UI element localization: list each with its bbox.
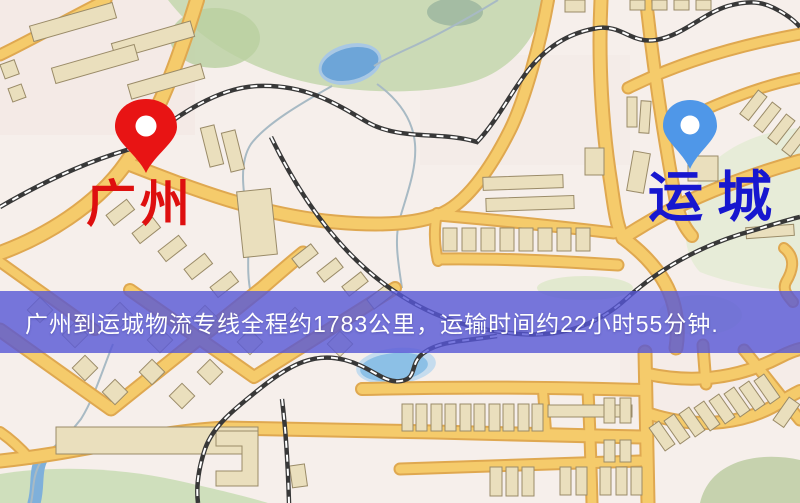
route-summary-text: 广州到运城物流专线全程约1783公里，运输时间约22小时55分钟. [25, 305, 719, 339]
street-map: 广州 运城 [0, 0, 800, 503]
destination-label: 运城 [648, 167, 786, 228]
destination-pin-hole [681, 116, 700, 135]
info-banner: 广州到运城物流专线全程约1783公里，运输时间约22小时55分钟. [0, 291, 800, 353]
origin-label: 广州 [86, 176, 194, 232]
map-viewport[interactable]: 广州 运城 广州到运城物流专线全程约1783公里，运输时间约22小时55分钟. [0, 0, 800, 503]
origin-pin-hole [136, 116, 157, 137]
